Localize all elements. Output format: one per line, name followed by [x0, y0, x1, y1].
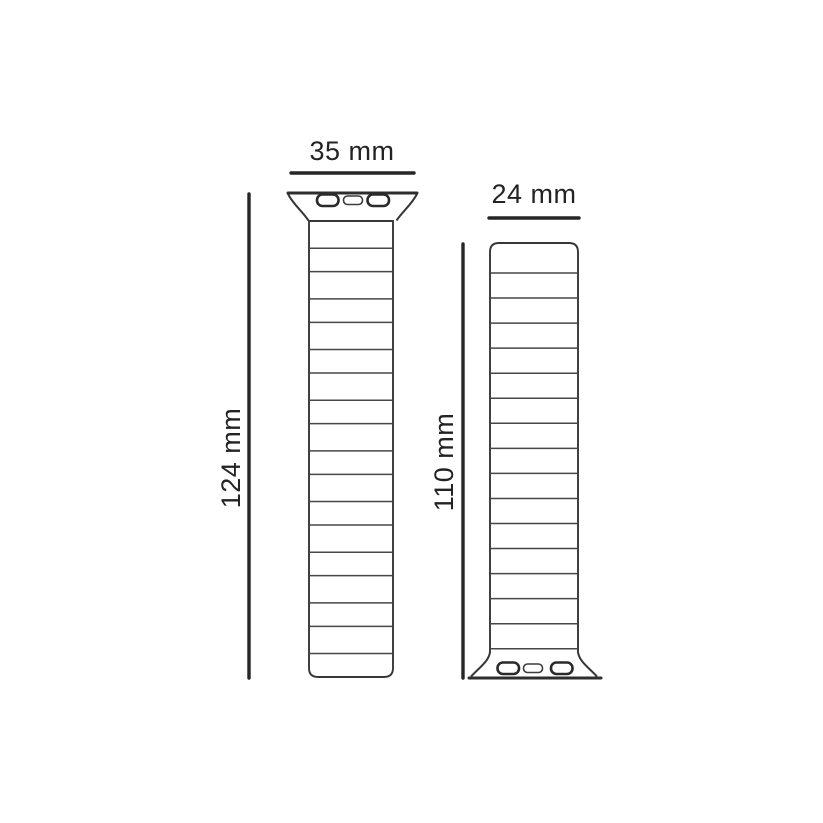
right-strap: 24 mm 110 mm	[429, 179, 601, 678]
dimension-diagram: 35 mm 124 mm 24 mm 110 mm	[0, 0, 823, 823]
left-strap-length-label: 124 mm	[216, 408, 246, 509]
left-strap-width-label: 35 mm	[309, 136, 394, 166]
adapter-spring-slot-icon	[524, 664, 543, 673]
right-strap-adapter	[469, 652, 601, 678]
adapter-spring-slot-icon	[344, 196, 363, 205]
adapter-right-edge	[578, 652, 597, 677]
adapter-left-edge	[288, 194, 309, 221]
adapter-slot-icon	[498, 663, 520, 675]
right-strap-length-label: 110 mm	[429, 413, 459, 512]
left-strap-body-outline	[309, 221, 393, 677]
left-strap-adapter	[288, 193, 417, 221]
left-strap: 35 mm 124 mm	[216, 136, 417, 678]
right-strap-width-label: 24 mm	[491, 179, 576, 209]
adapter-right-edge	[397, 194, 418, 221]
adapter-slot-icon	[368, 195, 390, 207]
adapter-slot-icon	[551, 663, 573, 675]
adapter-left-edge	[471, 652, 490, 677]
adapter-slot-icon	[317, 195, 339, 207]
